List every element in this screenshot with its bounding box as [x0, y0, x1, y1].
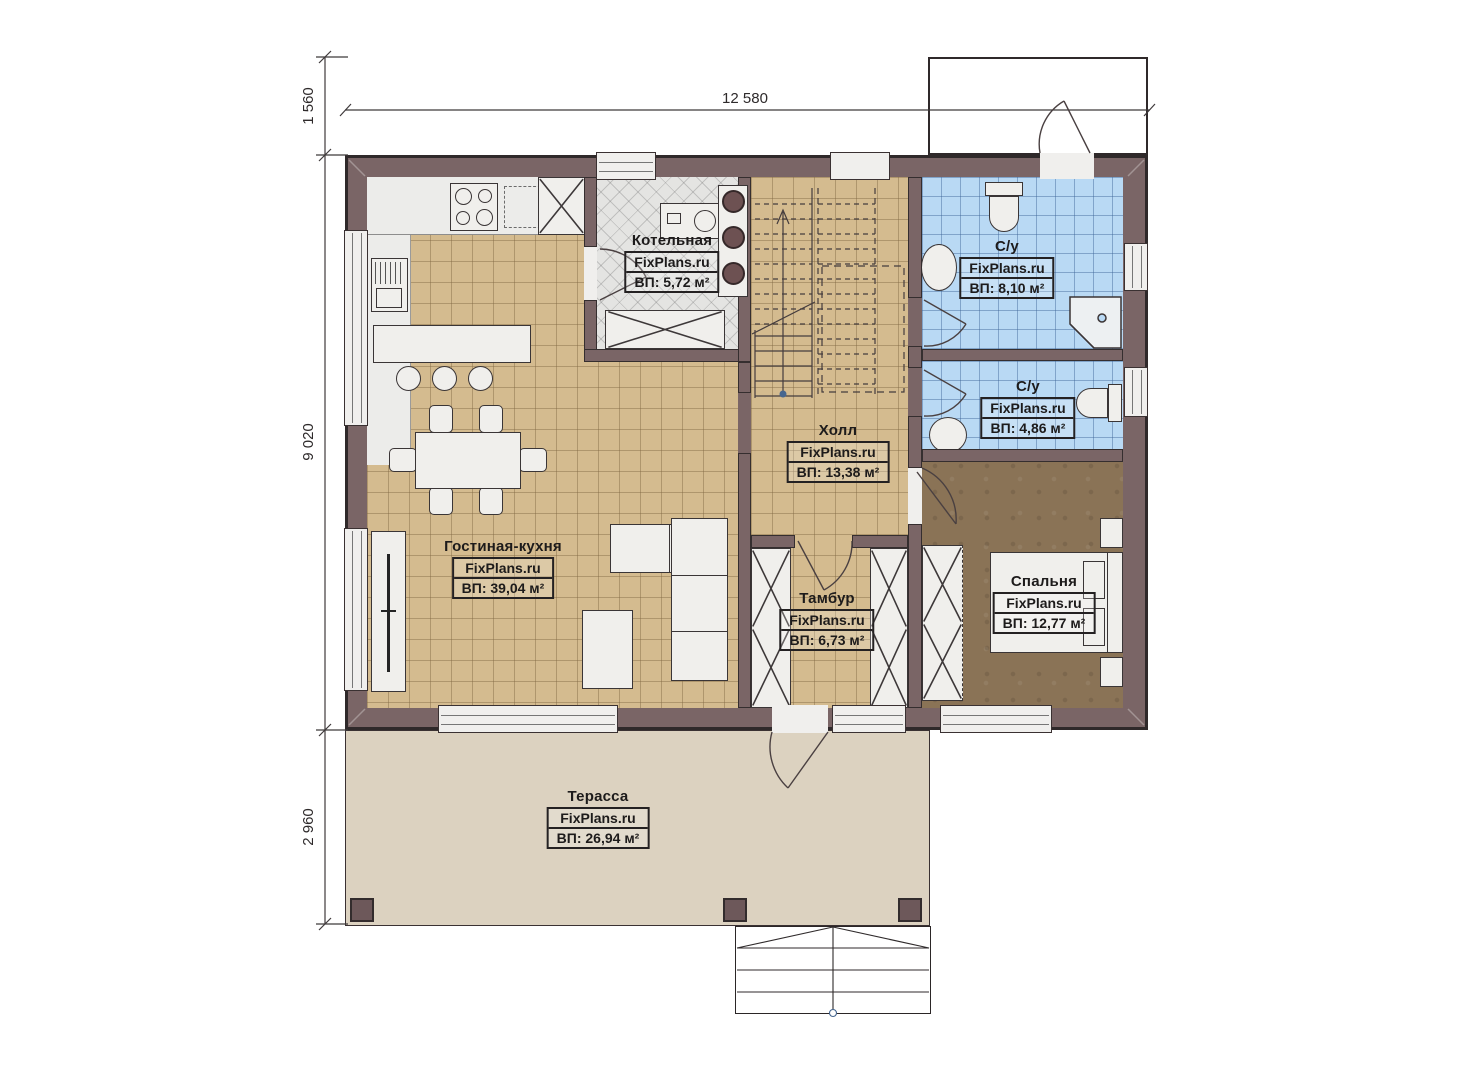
window — [940, 705, 1052, 733]
sofa-section — [671, 518, 728, 681]
boiler-vent-box — [605, 310, 725, 349]
floor-plan: 12 580 1 560 9 020 2 960 — [0, 0, 1473, 1080]
washer-drum-icon — [694, 210, 716, 232]
vent-grille-icon — [375, 262, 404, 284]
room-label-bath-top: С/у FixPlans.ru ВП: 8,10 м² — [959, 238, 1054, 299]
room-area: ВП: 5,72 м² — [626, 273, 717, 291]
room-name: Котельная — [632, 232, 712, 249]
bar-stool — [432, 366, 457, 391]
tv-stand — [381, 610, 396, 612]
watermark: FixPlans.ru — [995, 594, 1094, 614]
terrace-post — [350, 898, 374, 922]
nightstand — [1100, 518, 1123, 548]
room-name: Гостиная-кухня — [444, 538, 562, 555]
wardrobe — [870, 548, 908, 708]
room-info-box: FixPlans.ru ВП: 12,77 м² — [993, 592, 1096, 634]
room-info-box: FixPlans.ru ВП: 5,72 м² — [624, 251, 719, 293]
coffee-table — [582, 610, 633, 689]
appliance-door — [376, 288, 402, 308]
dining-chair — [389, 448, 417, 472]
room-label-terrace: Терасса FixPlans.ru ВП: 26,94 м² — [547, 788, 650, 849]
sink — [921, 244, 957, 291]
room-info-box: FixPlans.ru ВП: 13,38 м² — [787, 441, 890, 483]
wall — [908, 416, 922, 468]
room-area: ВП: 6,73 м² — [781, 631, 872, 649]
dining-chair — [519, 448, 547, 472]
wall — [738, 362, 751, 393]
kitchen-appliance — [371, 258, 408, 312]
wall — [908, 177, 922, 298]
burner-icon — [476, 209, 493, 226]
flue-icon — [722, 226, 745, 249]
terrace-post — [723, 898, 747, 922]
dim-height-main: 9 020 — [300, 423, 317, 461]
window — [438, 705, 618, 733]
dining-chair — [429, 487, 453, 515]
room-name: Спальня — [1011, 573, 1077, 590]
room-area: ВП: 8,10 м² — [961, 279, 1052, 297]
room-info-box: FixPlans.ru ВП: 6,73 м² — [779, 609, 874, 651]
boiler-door-opening — [584, 247, 597, 300]
vent-shaft — [538, 177, 585, 235]
watermark: FixPlans.ru — [961, 259, 1052, 279]
dining-chair — [429, 405, 453, 433]
watermark: FixPlans.ru — [781, 611, 872, 631]
washer-panel — [667, 213, 681, 224]
wall — [922, 349, 1123, 361]
window — [344, 528, 368, 691]
room-name: Тамбур — [799, 590, 855, 607]
window — [1124, 243, 1148, 291]
room-area: ВП: 39,04 м² — [454, 579, 553, 597]
wall — [584, 349, 751, 362]
wall — [584, 177, 597, 247]
window — [1124, 367, 1148, 417]
room-label-boiler: Котельная FixPlans.ru ВП: 5,72 м² — [624, 232, 719, 293]
room-name: С/у — [995, 238, 1019, 255]
room-label-vestibule: Тамбур FixPlans.ru ВП: 6,73 м² — [779, 590, 874, 651]
room-info-box: FixPlans.ru ВП: 4,86 м² — [980, 397, 1075, 439]
wall — [852, 535, 908, 548]
window — [344, 230, 368, 426]
window — [830, 152, 890, 180]
wall — [908, 346, 922, 368]
bedroom-wardrobe — [922, 545, 963, 701]
wall — [922, 449, 1123, 462]
dim-height-terrace: 2 960 — [300, 808, 317, 846]
room-label-bath-bottom: С/у FixPlans.ru ВП: 4,86 м² — [980, 378, 1075, 439]
burner-icon — [456, 211, 470, 225]
room-area: ВП: 12,77 м² — [995, 614, 1094, 632]
dining-chair — [479, 405, 503, 433]
dim-width: 12 580 — [722, 90, 768, 107]
watermark: FixPlans.ru — [549, 809, 648, 829]
room-name: С/у — [1016, 378, 1040, 395]
entrance-door-opening — [1040, 153, 1094, 179]
room-info-box: FixPlans.ru ВП: 39,04 м² — [452, 557, 555, 599]
dining-table — [415, 432, 521, 489]
entrance-porch — [928, 57, 1148, 155]
watermark: FixPlans.ru — [982, 399, 1073, 419]
toilet-bowl — [989, 196, 1019, 232]
window — [832, 705, 906, 733]
dining-chair — [479, 487, 503, 515]
room-name: Терасса — [568, 788, 629, 805]
terrace-post — [898, 898, 922, 922]
sofa-cushion-line — [669, 525, 670, 572]
flue-icon — [722, 262, 745, 285]
burner-icon — [455, 188, 472, 205]
watermark: FixPlans.ru — [454, 559, 553, 579]
dim-height-upper: 1 560 — [300, 87, 317, 125]
room-area: ВП: 26,94 м² — [549, 829, 648, 847]
headboard-line — [1107, 553, 1108, 652]
burner-icon — [478, 189, 492, 203]
exterior-steps — [735, 926, 931, 1014]
tv-cabinet — [371, 531, 406, 692]
kitchen-island — [373, 325, 531, 363]
room-label-bedroom: Спальня FixPlans.ru ВП: 12,77 м² — [993, 573, 1096, 634]
sofa-cushion-line — [672, 631, 727, 632]
terrace-door-opening — [772, 705, 828, 733]
bar-stool — [468, 366, 493, 391]
stove — [450, 183, 498, 231]
bar-stool — [396, 366, 421, 391]
toilet-bowl — [1076, 388, 1108, 418]
sofa-cushion-line — [672, 575, 727, 576]
room-label-hall: Холл FixPlans.ru ВП: 13,38 м² — [787, 422, 890, 483]
window — [596, 152, 656, 180]
tv-icon — [387, 554, 390, 672]
room-area: ВП: 4,86 м² — [982, 419, 1073, 437]
toilet-tank — [1108, 384, 1122, 422]
flue-icon — [722, 190, 745, 213]
nightstand — [1100, 657, 1123, 687]
room-area: ВП: 13,38 м² — [789, 463, 888, 481]
sink — [929, 417, 967, 453]
bedroom-door-opening — [908, 468, 922, 524]
room-label-living-kitchen: Гостиная-кухня FixPlans.ru ВП: 39,04 м² — [444, 538, 562, 599]
room-info-box: FixPlans.ru ВП: 26,94 м² — [547, 807, 650, 849]
watermark: FixPlans.ru — [626, 253, 717, 273]
wall — [738, 453, 751, 708]
room-info-box: FixPlans.ru ВП: 8,10 м² — [959, 257, 1054, 299]
watermark: FixPlans.ru — [789, 443, 888, 463]
wall — [908, 524, 922, 708]
toilet-tank — [985, 182, 1023, 196]
wall — [751, 535, 795, 548]
room-name: Холл — [819, 422, 857, 439]
